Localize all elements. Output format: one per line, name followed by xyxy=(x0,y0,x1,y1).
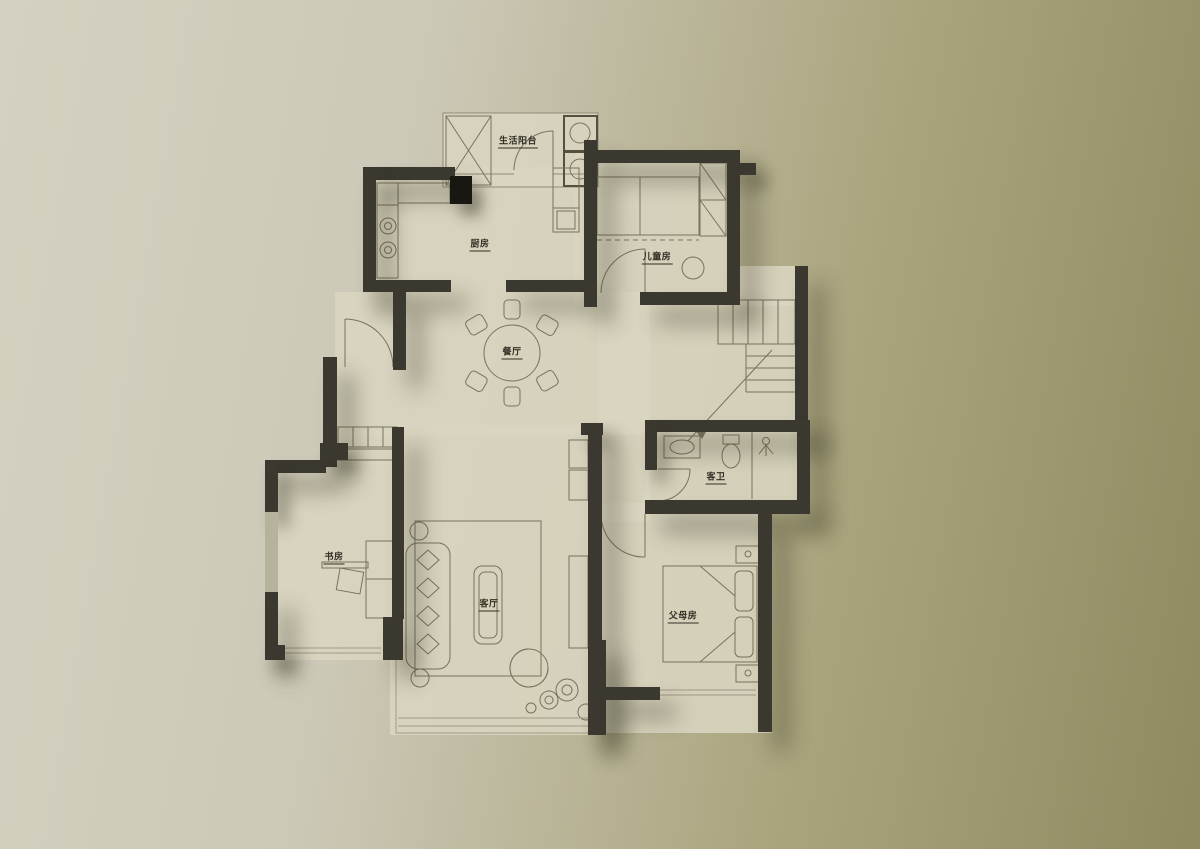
bathroom-fixtures xyxy=(658,432,773,501)
living-sofa xyxy=(406,440,588,687)
wall xyxy=(740,163,756,175)
wall-window xyxy=(265,512,278,594)
wall xyxy=(584,140,597,307)
wall xyxy=(265,460,278,515)
room-label-bath: 客卫 xyxy=(705,470,726,485)
room-label-study: 书房 xyxy=(323,550,344,565)
windows xyxy=(268,514,756,733)
wall xyxy=(506,280,584,292)
parents-bed xyxy=(601,514,761,682)
room-label-kitchen: 厨房 xyxy=(469,237,490,252)
room-label-parents: 父母房 xyxy=(668,609,699,624)
floor-plan: 生活阳台 厨房 儿童房 餐厅 客卫 书房 客厅 父母房 xyxy=(0,0,1200,849)
wall xyxy=(645,420,657,470)
wall xyxy=(383,617,403,660)
wall xyxy=(596,150,740,163)
room-label-living: 客厅 xyxy=(478,597,499,612)
wall xyxy=(758,514,772,732)
wall xyxy=(392,427,404,619)
wall xyxy=(320,443,348,460)
entry-door xyxy=(338,319,397,460)
fridge-appliance xyxy=(450,176,472,204)
wall xyxy=(363,280,451,292)
wall xyxy=(645,420,810,432)
wall xyxy=(600,687,660,700)
wall xyxy=(640,292,740,305)
wall xyxy=(265,645,285,660)
wall xyxy=(363,167,455,180)
wall xyxy=(393,290,406,370)
wall xyxy=(795,266,808,432)
kids-bed xyxy=(597,163,726,293)
room-label-balcony: 生活阳台 xyxy=(498,134,538,149)
room-label-kids: 儿童房 xyxy=(642,250,673,265)
wall xyxy=(727,150,740,305)
room-label-dining: 餐厅 xyxy=(501,345,522,360)
wall xyxy=(797,420,810,512)
wall xyxy=(645,500,810,514)
wall xyxy=(363,167,376,292)
